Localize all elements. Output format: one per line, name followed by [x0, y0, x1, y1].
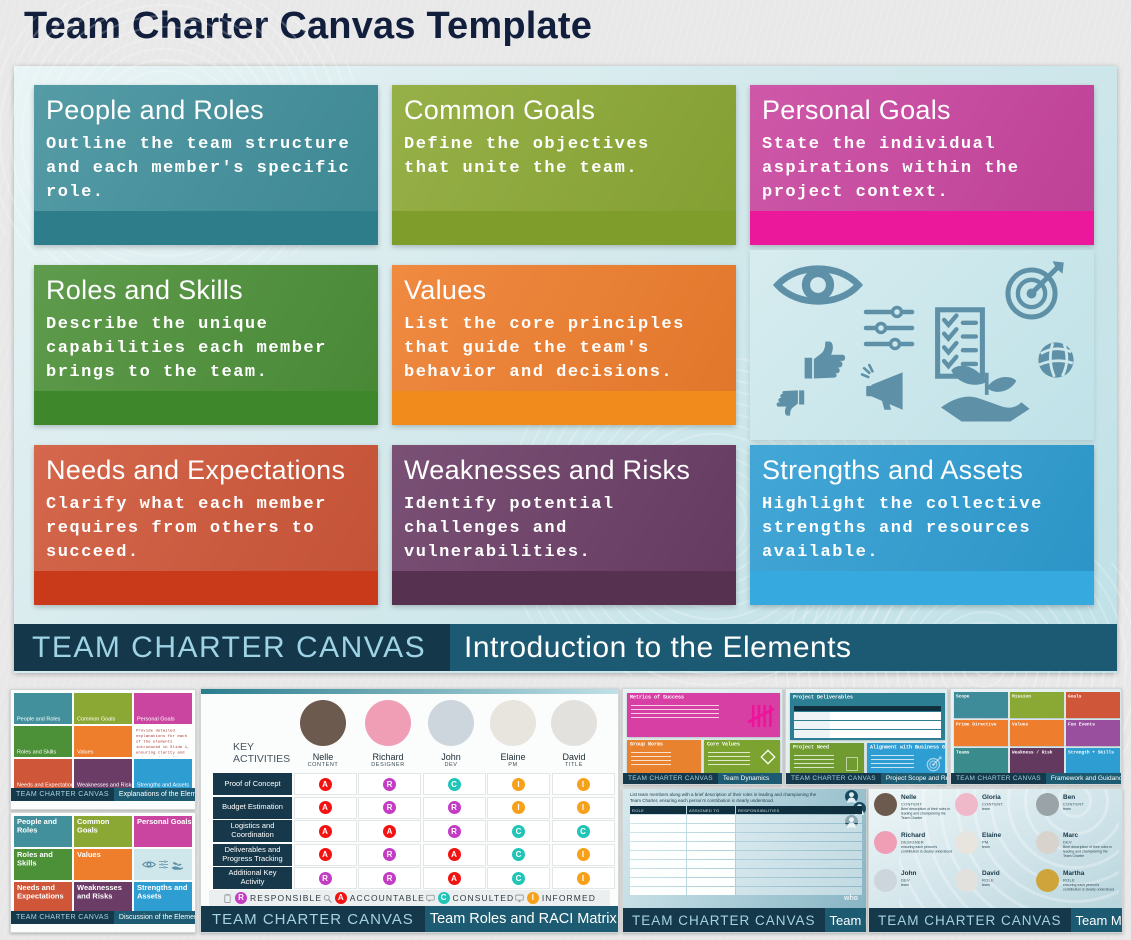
eye-icon — [142, 860, 156, 869]
raci-cell: A — [294, 844, 357, 866]
sliders-icon — [159, 860, 168, 869]
member-block: Richard DESIGNER ensuring each person's … — [874, 831, 954, 868]
thumbnail-banner: TEAM CHARTER CANVAS Team Dynamics — [623, 773, 782, 784]
framework-card-title: Goals — [1068, 694, 1121, 699]
raci-cell: C — [487, 820, 550, 842]
placeholder-lines — [708, 752, 750, 768]
member-role: CONTENT — [982, 802, 1003, 807]
framework-card: Teams — [954, 748, 1008, 774]
mini-cell: People and Roles — [14, 816, 72, 847]
card-title: Common Goals — [404, 95, 724, 126]
mini-canvas-grid: People and Roles Common Goals Personal G… — [14, 816, 192, 913]
member-block: Marc DEV Brief description of their role… — [1036, 831, 1116, 868]
member-role: ROLE — [1063, 878, 1075, 883]
template-page: { "page": { "title": "Team Charter Canva… — [0, 0, 1131, 940]
thumbnail-title: Discussion of the Elements — [119, 914, 195, 921]
card-description: Define the objectives that unite the tea… — [404, 133, 724, 181]
card-title: Values — [404, 275, 724, 306]
slide-note: List team members along with a brief des… — [630, 792, 825, 804]
avatar — [300, 700, 346, 746]
card-people-and-roles: People and Roles Outline the team struct… — [34, 85, 378, 245]
activity-label: Logistics and Coordination — [213, 820, 292, 842]
mini-cell-label: Values — [77, 749, 93, 755]
mini-cell-label: Roles and Skills — [17, 851, 72, 868]
raci-mark: A — [319, 848, 332, 861]
card-band — [750, 571, 1094, 605]
framework-card-title: Strength + Skills — [1068, 750, 1121, 755]
canvas-grid: People and Roles Outline the team struct… — [34, 85, 1094, 605]
sliders-icon — [863, 303, 915, 353]
thumbnail-title: Framework and Guidance — [1051, 775, 1121, 782]
team-charter-canvas-slide: People and Roles Outline the team struct… — [14, 66, 1117, 673]
mini-cell: Common Goals — [74, 816, 132, 847]
panel-title: Project Deliverables — [793, 695, 853, 701]
thumbnail-member-roles-table[interactable]: List team members along with a brief des… — [622, 788, 867, 933]
raci-mark: I — [577, 778, 590, 791]
column-header: ASSIGNED TO — [687, 806, 735, 814]
avatar — [551, 700, 597, 746]
member-block: Martha ROLE ensuring each person's contr… — [1036, 869, 1116, 906]
tally-icon — [748, 701, 774, 731]
raci-cell: R — [358, 797, 421, 819]
panel-alignment-business-goals: Alignment with Business Goals — [867, 743, 945, 774]
thumbnail-banner: TEAM CHARTER CANVAS Discussion of the El… — [11, 911, 195, 924]
member-column: Elaine PM — [481, 700, 545, 768]
brand-text: TEAM CHARTER CANVAS — [628, 913, 820, 928]
member-name: John — [419, 752, 483, 762]
eye-icon — [773, 258, 863, 312]
column-header: RESPONSIBILITIES — [736, 806, 862, 814]
mini-cell: Personal Goals — [134, 693, 192, 724]
brand-text: TEAM CHARTER CANVAS — [16, 914, 109, 921]
member-block: Elaine PM team — [955, 831, 1035, 868]
target-icon — [926, 756, 942, 772]
banner-brand-area: TEAM CHARTER CANVAS — [14, 624, 450, 671]
framework-card-title: Fun Events — [1068, 722, 1121, 727]
mini-note-cell: Provide detailed explanations for each o… — [134, 726, 192, 757]
mini-cell-label: Common Goals — [77, 818, 132, 835]
raci-cell: R — [423, 820, 486, 842]
mini-cell-label: Common Goals — [77, 716, 115, 722]
card-band — [34, 571, 378, 605]
panel-project-need: Project Need — [790, 743, 864, 774]
brand-text: TEAM CHARTER CANVAS — [791, 775, 876, 782]
card-title: Needs and Expectations — [46, 455, 366, 486]
thumbnail-banner: TEAM CHARTER CANVAS Explanations of the … — [11, 788, 195, 801]
avatar — [1036, 831, 1059, 854]
raci-cell: C — [487, 844, 550, 866]
avatar — [1036, 869, 1059, 892]
avatar — [874, 793, 897, 816]
thumbnail-title: Explanations of the Elements — [119, 791, 195, 798]
raci-mark: I — [577, 801, 590, 814]
mini-cell-label: Strengths and Assets — [137, 884, 192, 901]
mini-cell-label: Personal Goals — [137, 716, 175, 722]
raci-mark: C — [448, 778, 461, 791]
card-weaknesses-and-risks: Weaknesses and Risks Identify potential … — [392, 445, 736, 605]
clipboard-icon — [223, 894, 232, 903]
raci-mark: R — [383, 778, 396, 791]
raci-mark: C — [512, 848, 525, 861]
card-band — [392, 391, 736, 425]
panel-core-values: Core Values — [704, 740, 780, 773]
legend-item: R RESPONSIBLE — [223, 892, 322, 904]
card-title: Strengths and Assets — [762, 455, 1082, 486]
chat-icon — [426, 894, 435, 903]
legend-item: I INFORMED — [515, 892, 596, 904]
banner-title-area: Introduction to the Elements — [450, 624, 1117, 671]
member-desc: team — [901, 883, 953, 888]
member-role: DESIGNER — [901, 840, 924, 845]
mini-cell-label: Weaknesses and Risks — [77, 884, 132, 901]
framework-card: Scope — [954, 692, 1008, 718]
raci-table: Proof of Concept A R C I I Budget Estima… — [213, 773, 615, 889]
member-desc: Brief description of their roles in lead… — [1063, 845, 1115, 859]
thumbnail-banner: TEAM CHARTER CANVAS Team Member Roles — [623, 908, 866, 932]
thumbnail-member-roles-people[interactable]: Nelle CONTENT Brief description of their… — [868, 788, 1123, 933]
avatar — [365, 700, 411, 746]
raci-mark: A — [383, 825, 396, 838]
member-desc: Brief description of their roles in lead… — [901, 807, 953, 821]
thumbnail-title: Team Member Roles — [1076, 913, 1122, 928]
member-role: ROLE — [982, 878, 994, 883]
mini-icons-cell — [134, 849, 192, 880]
avatar — [955, 831, 978, 854]
target-icon — [1003, 260, 1065, 322]
mini-cell: People and Roles — [14, 693, 72, 724]
legend-letter: C — [438, 892, 450, 904]
card-needs-and-expectations: Needs and Expectations Clarify what each… — [34, 445, 378, 605]
brand-text: TEAM CHARTER CANVAS — [32, 631, 426, 665]
avatar — [490, 700, 536, 746]
card-strengths-and-assets: Strengths and Assets Highlight the colle… — [750, 445, 1094, 605]
raci-mark: A — [448, 872, 461, 885]
raci-cell: A — [294, 797, 357, 819]
card-title: Weaknesses and Risks — [404, 455, 724, 486]
placeholder-lines — [631, 705, 719, 721]
raci-cell: R — [358, 867, 421, 889]
brand-text: TEAM CHARTER CANVAS — [956, 775, 1041, 782]
column-header: ROLE — [630, 806, 686, 814]
activity-label: Budget Estimation — [213, 797, 292, 819]
member-block: Gloria CONTENT team — [955, 793, 1035, 830]
raci-cell: A — [423, 844, 486, 866]
raci-cell: A — [358, 820, 421, 842]
roles-table: ROLE ASSIGNED TO RESPONSIBILITIES — [630, 806, 862, 895]
thumbnail-discussion[interactable]: People and Roles Common Goals Personal G… — [10, 812, 196, 933]
member-role: CONTENT — [901, 802, 922, 807]
legend-label: ACCOUNTABLE — [350, 893, 425, 903]
raci-mark: R — [448, 825, 461, 838]
card-title: People and Roles — [46, 95, 366, 126]
framework-card: Mission — [1010, 692, 1064, 718]
member-desc: ensuring each person's contribution is c… — [1063, 883, 1115, 892]
raci-mark: I — [512, 778, 525, 791]
framework-card-title: Scope — [956, 694, 1009, 699]
card-common-goals: Common Goals Define the objectives that … — [392, 85, 736, 245]
magnifier-icon — [323, 894, 332, 903]
mini-cell: Common Goals — [74, 693, 132, 724]
member-desc: ensuring each person's contribution is c… — [901, 845, 953, 854]
member-column: John DEV — [419, 700, 483, 768]
placeholder-lines — [794, 755, 834, 771]
raci-mark: A — [319, 778, 332, 791]
raci-cell: C — [487, 867, 550, 889]
mini-cell-label: People and Roles — [17, 818, 72, 835]
raci-cell: A — [294, 820, 357, 842]
member-name: Gloria — [982, 794, 1001, 801]
raci-mark: R — [319, 872, 332, 885]
member-name: Martha — [1063, 870, 1084, 877]
raci-cell: R — [423, 797, 486, 819]
card-roles-and-skills: Roles and Skills Describe the unique cap… — [34, 265, 378, 425]
brand-text: TEAM CHARTER CANVAS — [874, 913, 1066, 928]
member-name: Richard — [901, 832, 925, 839]
activity-label: Proof of Concept — [213, 773, 292, 795]
member-name: David — [982, 870, 1000, 877]
values-icon-panel — [750, 250, 1094, 440]
thumbnail-banner: TEAM CHARTER CANVAS Project Scope and Re… — [786, 773, 947, 784]
mini-cell: Roles and Skills — [14, 726, 72, 757]
member-desc: team — [982, 807, 1034, 812]
raci-mark: R — [448, 801, 461, 814]
thumbnail-explanations[interactable]: People and Roles Common Goals Personal G… — [10, 689, 196, 810]
framework-card: Prime Directive — [954, 720, 1008, 746]
framework-card: Values — [1010, 720, 1064, 746]
hand-plant-icon — [171, 860, 184, 870]
framework-card-title: Teams — [956, 750, 1009, 755]
member-name: Richard — [356, 752, 420, 762]
raci-cell: A — [294, 773, 357, 795]
framework-card: Goals — [1066, 692, 1120, 718]
framework-card-title: Values — [1012, 722, 1065, 727]
legend-label: CONSULTED — [453, 893, 515, 903]
raci-mark: I — [577, 872, 590, 885]
mini-cell: Strengths and Assets — [134, 759, 192, 790]
member-name: Elaine — [481, 752, 545, 762]
diamond-icon — [760, 749, 776, 765]
globe-icon — [1036, 338, 1076, 382]
raci-cell: I — [552, 867, 615, 889]
card-band — [392, 571, 736, 605]
member-role: TITLE — [542, 762, 606, 768]
thumbnail-raci-matrix[interactable]: KEY ACTIVITIES Nelle CONTENT Richard DES… — [200, 688, 619, 933]
panel-metrics-of-success: Metrics of Success — [627, 693, 780, 737]
member-column: David TITLE — [542, 700, 606, 768]
raci-cell: R — [294, 867, 357, 889]
mini-table — [794, 706, 941, 738]
mini-cell: Roles and Skills — [14, 849, 72, 880]
brand-text: TEAM CHARTER CANVAS — [16, 791, 109, 798]
card-description: List the core principles that guide the … — [404, 313, 724, 385]
card-description: Outline the team structure and each memb… — [46, 133, 366, 205]
member-desc: team — [982, 845, 1034, 850]
members-grid: Nelle CONTENT Brief description of their… — [874, 793, 1116, 906]
thumbnail-banner: TEAM CHARTER CANVAS Framework and Guidan… — [951, 773, 1121, 784]
card-band — [750, 211, 1094, 245]
raci-cell: I — [552, 844, 615, 866]
thumbnail-team-dynamics[interactable]: Metrics of Success Group Norms Core Valu… — [622, 688, 783, 785]
raci-mark: I — [577, 848, 590, 861]
page-title: Team Charter Canvas Template — [24, 5, 592, 48]
framework-card: Fun Events — [1066, 720, 1120, 746]
card-description: Describe the unique capabilities each me… — [46, 313, 366, 385]
corner-tag: who — [844, 895, 858, 902]
member-column: Richard DESIGNER — [356, 700, 420, 768]
megaphone-icon — [858, 363, 916, 415]
member-role: DESIGNER — [356, 762, 420, 768]
thumbs-down-icon — [775, 388, 807, 418]
brand-text: TEAM CHARTER CANVAS — [628, 775, 713, 782]
panel-title: Group Norms — [630, 742, 663, 748]
avatar — [874, 869, 897, 892]
mini-cell-label: Needs and Expectations — [17, 884, 72, 901]
gradient-strip — [201, 689, 618, 694]
mini-cell-label: People and Roles — [17, 716, 60, 722]
member-role: CONTENT — [291, 762, 355, 768]
member-role: PM — [481, 762, 545, 768]
panel-title: Project Need — [793, 745, 829, 751]
mini-cell: Needs and Expectations — [14, 882, 72, 913]
thumbnail-framework[interactable]: Scope Mission Goals Prime Directive Valu… — [950, 688, 1122, 785]
thumbnail-project-scope[interactable]: Project Deliverables Project Need Alignm… — [785, 688, 948, 785]
mini-note-text: Provide detailed explanations for each o… — [136, 728, 192, 757]
activity-label: Additional Key Activity — [213, 867, 292, 889]
raci-mark: R — [383, 872, 396, 885]
thumbnail-title: Team Member Roles — [830, 913, 866, 928]
raci-mark: A — [319, 825, 332, 838]
member-role: DEV — [1063, 840, 1072, 845]
avatar — [955, 869, 978, 892]
raci-cell: I — [552, 797, 615, 819]
thumbnail-title: Team Dynamics — [723, 775, 769, 782]
mini-canvas-grid: People and Roles Common Goals Personal G… — [14, 693, 192, 790]
legend-label: RESPONSIBLE — [250, 893, 322, 903]
monitor-icon — [515, 894, 524, 903]
card-personal-goals: Personal Goals State the individual aspi… — [750, 85, 1094, 245]
card-description: Highlight the collective strengths and r… — [762, 493, 1082, 565]
raci-cell: I — [487, 797, 550, 819]
member-role: PM — [982, 840, 989, 845]
card-band — [34, 391, 378, 425]
member-name: John — [901, 870, 917, 877]
mini-cell-label: Personal Goals — [137, 818, 192, 826]
panel-project-deliverables: Project Deliverables — [790, 693, 945, 740]
member-name: Marc — [1063, 832, 1078, 839]
framework-card: Strength + Skills — [1066, 748, 1120, 774]
raci-mark: A — [319, 801, 332, 814]
raci-cell: I — [487, 773, 550, 795]
mini-cell: Values — [74, 849, 132, 880]
slide-title-banner: TEAM CHARTER CANVAS Introduction to the … — [14, 624, 1117, 671]
panel-title: Core Values — [707, 742, 740, 748]
raci-mark: C — [512, 872, 525, 885]
legend-item: A ACCOUNTABLE — [323, 892, 425, 904]
member-desc: team — [1063, 807, 1115, 812]
raci-mark: I — [512, 801, 525, 814]
member-block: Nelle CONTENT Brief description of their… — [874, 793, 954, 830]
legend-letter: I — [527, 892, 539, 904]
raci-cell: R — [358, 844, 421, 866]
slide-subtitle: Introduction to the Elements — [464, 631, 852, 665]
panel-title: Metrics of Success — [630, 695, 684, 701]
placeholder-lines — [631, 752, 671, 768]
framework-grid: Scope Mission Goals Prime Directive Valu… — [954, 692, 1120, 774]
card-band — [34, 211, 378, 245]
mini-cell-label: Values — [77, 851, 132, 859]
member-block: Ben CONTENT team — [1036, 793, 1116, 830]
mini-cell: Needs and Expectations — [14, 759, 72, 790]
raci-mark: R — [383, 848, 396, 861]
member-column: Nelle CONTENT — [291, 700, 355, 768]
member-block: John DEV team — [874, 869, 954, 906]
raci-mark: A — [448, 848, 461, 861]
member-role: CONTENT — [1063, 802, 1084, 807]
member-name: Elaine — [982, 832, 1001, 839]
member-role: DEV — [419, 762, 483, 768]
panel-group-norms: Group Norms — [627, 740, 701, 773]
mini-cell: Weaknesses and Risks — [74, 759, 132, 790]
raci-mark: C — [512, 825, 525, 838]
raci-cell: C — [552, 820, 615, 842]
framework-card-title: Mission — [1012, 694, 1065, 699]
legend-label: INFORMED — [542, 893, 596, 903]
card-title: Personal Goals — [762, 95, 1082, 126]
card-description: Identify potential challenges and vulner… — [404, 493, 724, 565]
member-name: Nelle — [901, 794, 917, 801]
thumbs-up-icon — [802, 338, 846, 382]
card-band — [392, 211, 736, 245]
mini-cell: Strengths and Assets — [134, 882, 192, 913]
avatar — [874, 831, 897, 854]
key-activities-label: KEY ACTIVITIES — [233, 741, 290, 765]
member-name: Ben — [1063, 794, 1075, 801]
raci-cell: A — [423, 867, 486, 889]
mini-cell: Weaknesses and Risks — [74, 882, 132, 913]
card-title: Roles and Skills — [46, 275, 366, 306]
raci-cell: I — [552, 773, 615, 795]
mini-cell: Values — [74, 726, 132, 757]
framework-card-title: Weakness / Risk — [1012, 750, 1065, 755]
card-description: State the individual aspirations within … — [762, 133, 1082, 205]
legend-item: C CONSULTED — [426, 892, 515, 904]
legend-letter: A — [335, 892, 347, 904]
brand-text: TEAM CHARTER CANVAS — [206, 911, 420, 928]
raci-legend: R RESPONSIBLE A ACCOUNTABLE C CONSULTED … — [209, 890, 610, 906]
mini-cell-label: Roles and Skills — [17, 749, 56, 755]
building-icon — [846, 757, 858, 771]
legend-letter: R — [235, 892, 247, 904]
thumbnail-banner: TEAM CHARTER CANVAS Team Roles and RACI … — [201, 906, 618, 932]
mini-cell: Personal Goals — [134, 816, 192, 847]
raci-mark: R — [383, 801, 396, 814]
thumbnail-title: Project Scope and Relevance — [886, 775, 947, 782]
avatar — [1036, 793, 1059, 816]
raci-cell: R — [358, 773, 421, 795]
thumbnail-banner: TEAM CHARTER CANVAS Team Member Roles — [869, 908, 1122, 932]
member-name: David — [542, 752, 606, 762]
activity-label: Deliverables and Progress Tracking — [213, 844, 292, 866]
card-description: Clarify what each member requires from o… — [46, 493, 366, 565]
member-block: David ROLE team — [955, 869, 1035, 906]
hand-plant-icon — [938, 348, 1034, 424]
thumbnail-title: Team Roles and RACI Matrix — [430, 911, 617, 927]
framework-card-title: Prime Directive — [956, 722, 1009, 727]
member-name: Nelle — [291, 752, 355, 762]
avatar — [428, 700, 474, 746]
card-values: Values List the core principles that gui… — [392, 265, 736, 425]
placeholder-lines — [871, 755, 914, 771]
